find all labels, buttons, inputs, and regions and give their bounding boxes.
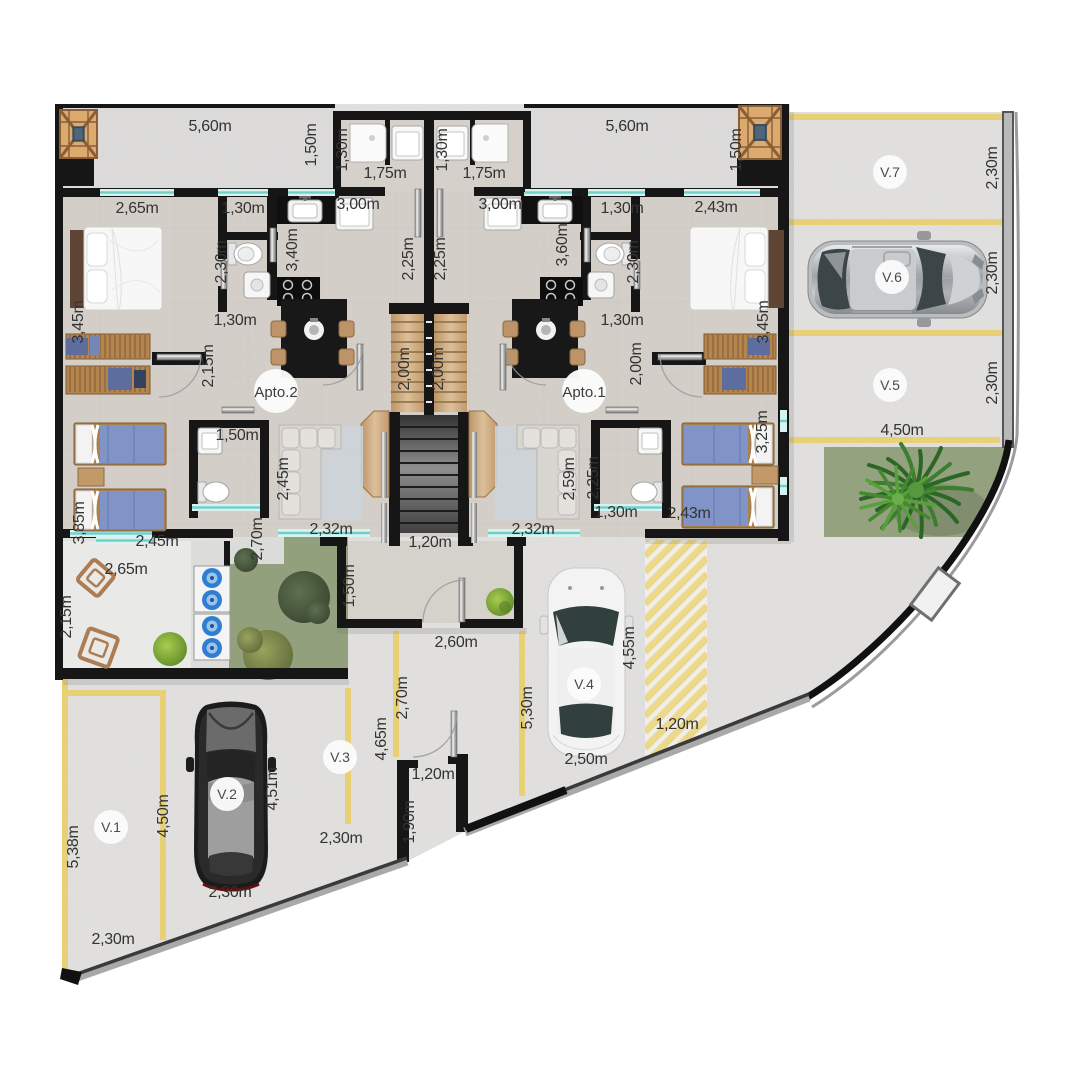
svg-text:2,70m: 2,70m	[394, 677, 411, 720]
svg-text:4,55m: 4,55m	[621, 627, 638, 670]
svg-text:2,65m: 2,65m	[116, 200, 159, 217]
svg-text:2,30m: 2,30m	[320, 830, 363, 847]
svg-text:2,50m: 2,50m	[565, 751, 608, 768]
svg-text:1,50m: 1,50m	[728, 129, 745, 172]
svg-text:2,30m: 2,30m	[209, 884, 252, 901]
svg-text:1,30m: 1,30m	[601, 312, 644, 329]
svg-text:2,00m: 2,00m	[430, 348, 447, 391]
svg-text:2,30m: 2,30m	[984, 252, 1001, 295]
svg-text:3,45m: 3,45m	[70, 301, 87, 344]
svg-text:3,00m: 3,00m	[479, 196, 522, 213]
svg-text:1,30m: 1,30m	[334, 129, 351, 172]
svg-text:3,85m: 3,85m	[71, 502, 88, 545]
svg-text:2,15m: 2,15m	[58, 596, 75, 639]
svg-text:V.5: V.5	[880, 377, 900, 393]
svg-text:2,43m: 2,43m	[668, 505, 711, 522]
svg-text:3,00m: 3,00m	[337, 196, 380, 213]
svg-text:2,15m: 2,15m	[200, 345, 217, 388]
svg-text:2,00m: 2,00m	[628, 343, 645, 386]
svg-text:1,75m: 1,75m	[364, 165, 407, 182]
svg-text:2,32m: 2,32m	[512, 521, 555, 538]
svg-text:2,60m: 2,60m	[435, 634, 478, 651]
svg-text:2,30m: 2,30m	[213, 241, 230, 284]
svg-text:1,20m: 1,20m	[409, 534, 452, 551]
svg-text:2,70m: 2,70m	[249, 518, 266, 561]
svg-text:V.3: V.3	[330, 749, 350, 765]
svg-text:5,60m: 5,60m	[606, 118, 649, 135]
svg-text:Apto.1: Apto.1	[562, 384, 605, 401]
svg-text:2,30m: 2,30m	[984, 362, 1001, 405]
svg-text:V.4: V.4	[574, 676, 594, 692]
svg-text:4,50m: 4,50m	[155, 795, 172, 838]
svg-text:V.7: V.7	[880, 164, 900, 180]
svg-text:2,45m: 2,45m	[136, 533, 179, 550]
svg-text:5,38m: 5,38m	[65, 826, 82, 869]
svg-text:5,30m: 5,30m	[519, 687, 536, 730]
svg-text:1,30m: 1,30m	[601, 200, 644, 217]
svg-text:2,00m: 2,00m	[396, 348, 413, 391]
svg-text:V.2: V.2	[217, 786, 237, 802]
svg-text:2,65m: 2,65m	[105, 561, 148, 578]
svg-text:2,30m: 2,30m	[625, 241, 642, 284]
svg-text:1,30m: 1,30m	[434, 129, 451, 172]
svg-text:V.6: V.6	[882, 269, 902, 285]
svg-text:2,59m: 2,59m	[561, 458, 578, 501]
svg-text:Apto.2: Apto.2	[254, 384, 297, 401]
svg-text:4,51m: 4,51m	[264, 768, 281, 811]
svg-text:1,30m: 1,30m	[222, 200, 265, 217]
svg-text:1,30m: 1,30m	[595, 504, 638, 521]
svg-text:1,30m: 1,30m	[214, 312, 257, 329]
svg-text:2,25m: 2,25m	[585, 457, 602, 500]
svg-text:1,90m: 1,90m	[401, 801, 418, 844]
svg-text:V.1: V.1	[101, 819, 121, 835]
svg-text:3,40m: 3,40m	[284, 229, 301, 272]
svg-text:1,75m: 1,75m	[463, 165, 506, 182]
svg-text:4,65m: 4,65m	[373, 718, 390, 761]
svg-text:2,30m: 2,30m	[984, 147, 1001, 190]
svg-text:1,50m: 1,50m	[341, 565, 358, 608]
svg-text:2,32m: 2,32m	[310, 521, 353, 538]
svg-text:1,20m: 1,20m	[412, 766, 455, 783]
svg-text:3,45m: 3,45m	[755, 301, 772, 344]
svg-text:1,20m: 1,20m	[656, 716, 699, 733]
svg-text:3,60m: 3,60m	[554, 224, 571, 267]
svg-text:1,50m: 1,50m	[303, 124, 320, 167]
svg-text:1,50m: 1,50m	[216, 427, 259, 444]
svg-text:2,25m: 2,25m	[432, 238, 449, 281]
svg-text:2,30m: 2,30m	[92, 931, 135, 948]
svg-text:5,60m: 5,60m	[189, 118, 232, 135]
svg-text:4,50m: 4,50m	[881, 422, 924, 439]
svg-text:3,25m: 3,25m	[754, 411, 771, 454]
svg-text:2,45m: 2,45m	[275, 458, 292, 501]
svg-text:2,25m: 2,25m	[400, 238, 417, 281]
svg-text:2,43m: 2,43m	[695, 199, 738, 216]
